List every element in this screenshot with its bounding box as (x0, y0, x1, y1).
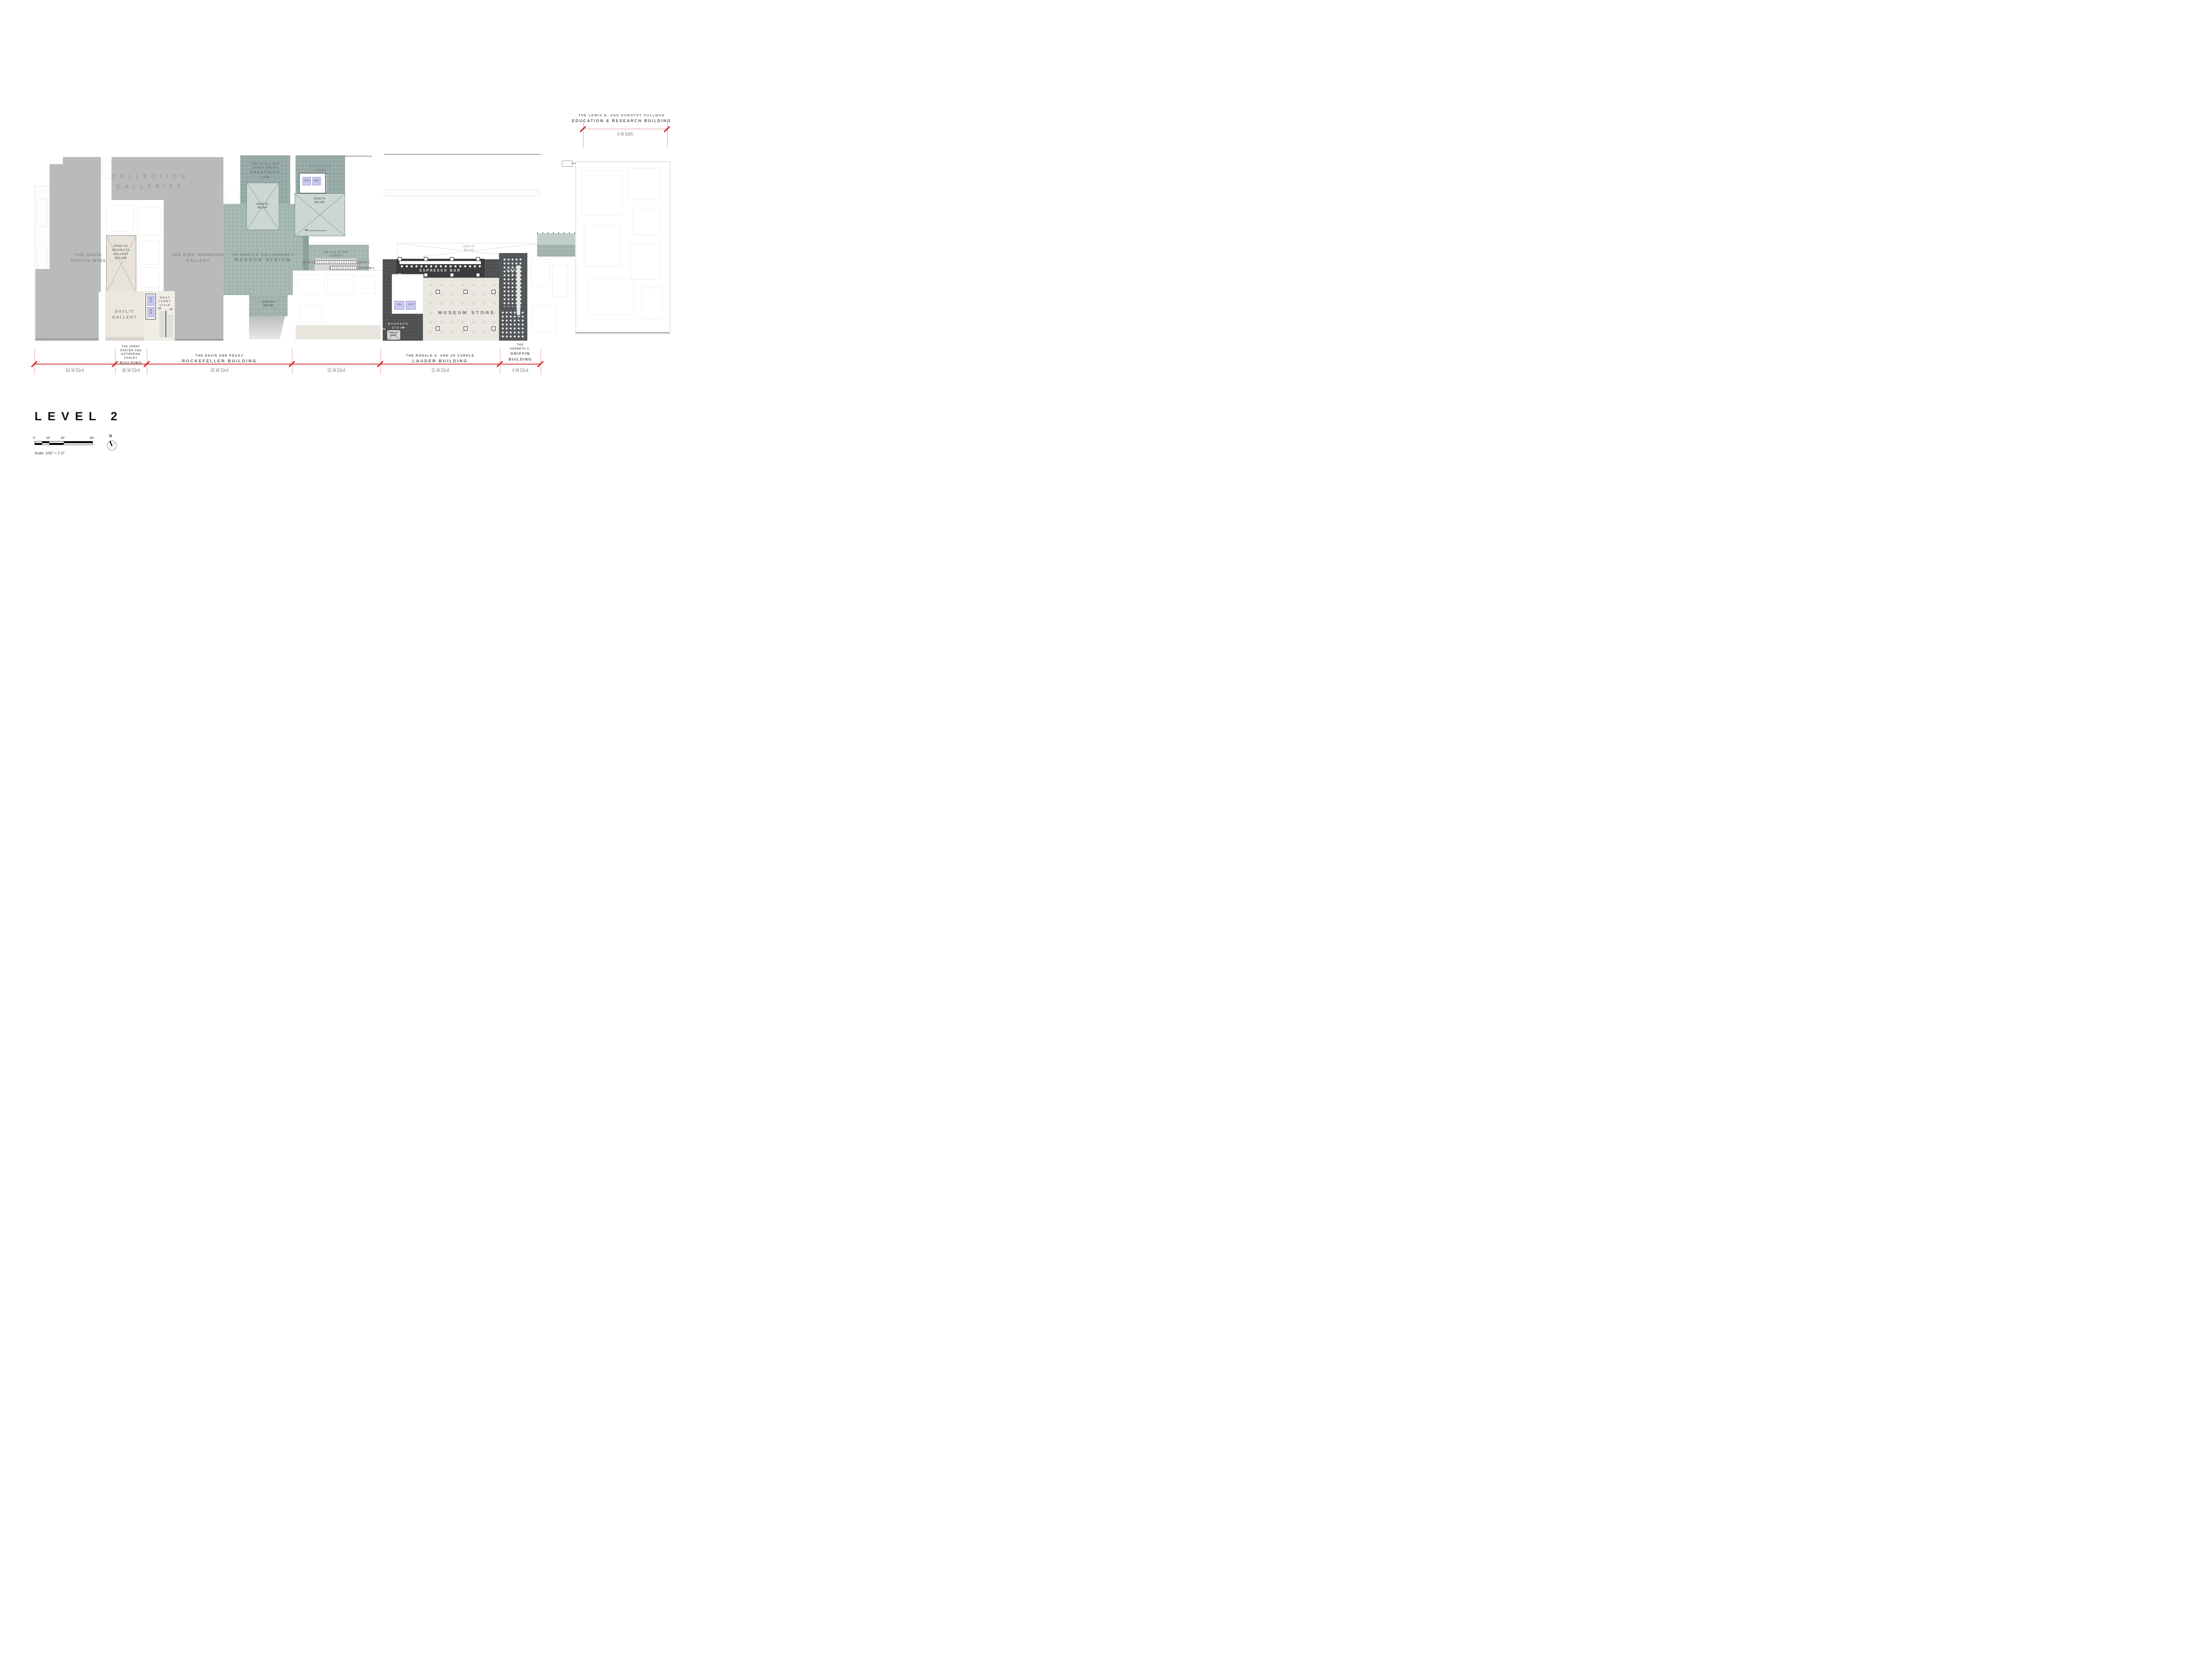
lauder-building-name: THE RONALD S. AND JO CAROLE LAUDER BUILD… (396, 354, 484, 365)
faint-room (633, 208, 660, 235)
espresso-stools (399, 265, 481, 268)
dim-line-54th (583, 129, 667, 129)
faint-room (630, 243, 660, 280)
column-post (476, 273, 480, 277)
elevator-pe5: PE-5 (303, 177, 311, 185)
faint-room (106, 204, 134, 232)
faint-room (141, 267, 159, 288)
faint-room (533, 305, 557, 333)
column-post (424, 273, 428, 277)
faint-bridge (384, 189, 540, 196)
address-25w53: 25 W 53rd (204, 367, 235, 373)
cafe-tables (501, 311, 524, 338)
daylit-gallery-label: DAYLITGALLERY (105, 309, 144, 320)
dn-to-1-label: DN TO 1 (358, 261, 378, 265)
plan-notch (50, 157, 63, 164)
daylit-shadow (105, 337, 144, 341)
escalator-down (330, 266, 357, 270)
cullman-link-line (572, 163, 576, 164)
faint-room (138, 241, 159, 265)
column-post (436, 326, 440, 330)
column-post (476, 257, 480, 261)
column-post (398, 257, 402, 261)
connector-ticks (537, 232, 575, 234)
faint-room (299, 305, 322, 322)
dim-hairline (292, 349, 292, 374)
varnedoe-gallery-label: THE KIRK VARNEDOEGALLERY (167, 252, 229, 263)
elevator-lobby-label: ELEVATORLOBBY (296, 165, 345, 173)
scale-tick-16: 16' (46, 436, 50, 440)
west-lobby-stair-label: WESTLOBBYSTAIR (154, 296, 176, 307)
roof-line (310, 156, 372, 157)
faint-room (327, 274, 353, 295)
scale-tick-64: 64' (90, 436, 94, 440)
column-post (436, 290, 440, 294)
elevator-pe21: PE21 (147, 307, 154, 317)
open-below-label: OPEN TOBELOW (397, 245, 541, 253)
cafe2-label: CAFE2 (499, 268, 527, 277)
elevator-pe6: PE-6 (312, 177, 321, 185)
center-wood-band (296, 325, 380, 339)
faint-room (137, 207, 161, 235)
address-4w54: 4 W 54th (609, 131, 641, 137)
open-below-label: OPEN TOBELOW (249, 300, 288, 308)
faint-room (552, 265, 568, 297)
dim-hairline (541, 349, 541, 374)
dim-hairline (35, 349, 35, 374)
cullman-annex (562, 161, 572, 167)
elevator-pe20: PE20 (147, 296, 154, 306)
faint-room (297, 274, 325, 295)
column-post (464, 326, 468, 330)
address-9w53: 9 W 53rd (504, 367, 536, 373)
entry-canopy (249, 316, 285, 339)
espresso-counter (399, 261, 481, 264)
collection-galleries-label: COLLECTIONGALLERIES (77, 172, 223, 192)
faint-room (531, 259, 549, 286)
dim-hairline (500, 349, 500, 374)
column-post (464, 290, 468, 294)
faint-room (588, 279, 634, 315)
stair-flight-up (167, 315, 173, 337)
dim-hairline (583, 120, 584, 148)
dn-label: DN (381, 328, 387, 330)
faint-room (584, 226, 620, 266)
griffin-building-name: THEKENNETH C. GRIFFIN BUILDING (503, 343, 538, 362)
faint-room (37, 248, 47, 270)
roof-line (384, 154, 541, 155)
espresso-bar-label: ESPRESSO BAR (397, 268, 484, 273)
dn-arrow-line (310, 230, 326, 231)
scale-tick-0: 0 (33, 436, 35, 440)
column-post (492, 326, 495, 330)
open-below-label: OPEN TOBELOW (295, 197, 344, 205)
address-11w53: 11 W 53rd (424, 367, 456, 373)
faint-stair (322, 175, 326, 191)
stair-divider (165, 311, 166, 337)
cullman-connector-lower (537, 245, 575, 257)
escalator-lobby-label: ESCALATORLOBBY (310, 251, 363, 258)
marron-atrium-label: THE DONALD B. AND CATHERINE C. MARRON AT… (223, 253, 303, 263)
faint-room (628, 168, 660, 200)
faint-room (37, 199, 47, 227)
cullman-connector-upper (537, 233, 575, 245)
north-arrow-icon (105, 439, 119, 452)
address-15w53: 15 W 53rd (320, 367, 352, 373)
column-post (450, 273, 454, 277)
column-post (492, 290, 495, 294)
cullman-bottom-edge (576, 332, 669, 333)
open-below-label: OPEN TOBELOW (387, 331, 400, 336)
north-label: N (109, 434, 112, 438)
cullman-title: THE LEWIS B. AND DOROTHY CULLMAN EDUCATI… (555, 114, 684, 124)
up-label: UP (401, 326, 406, 329)
creativity-lab-label: THE PAULA ANDJAMES CROWN CREATIVITY LAB (240, 162, 290, 180)
varnedoe-lower-mass (175, 283, 223, 341)
up-label: UP (168, 308, 174, 311)
open-below-label: OPEN TOBELOW (246, 203, 278, 210)
column-post (450, 257, 454, 261)
scale-tick-32: 32' (61, 436, 65, 440)
dn-label: DN (303, 229, 310, 232)
page-title: LEVEL 2 (35, 410, 123, 423)
elevator-pe9: PE 9 (406, 301, 416, 310)
scale-bar-row2 (35, 443, 93, 445)
museum-store-label: MUSEUM STORE (423, 310, 511, 316)
geffen-wing-label: THE DAVIDGEFFEN WING (62, 252, 115, 263)
address-45w53: 45 W 53rd (115, 367, 147, 373)
faint-room (356, 275, 376, 294)
mass-shadow (175, 339, 223, 341)
geffen-wing-lower-mass (35, 269, 99, 341)
scale-note: Scale: 1/32" = 1'-0" (35, 451, 65, 455)
dim-hairline (380, 349, 381, 374)
stair-flight-down (159, 311, 165, 337)
dim-hairline (667, 120, 668, 148)
farley-building-name: THE JERRYSPEYER AND KATHERINEFARLEY BUIL… (113, 345, 149, 365)
escalator-up (315, 260, 357, 264)
rockefeller-building-name: THE DAVID AND PEGGY ROCKEFELLER BUILDING (175, 354, 264, 365)
mass-shadow (35, 338, 99, 340)
address-53w53: 53 W 53rd (59, 367, 91, 373)
faint-room (225, 186, 240, 204)
column-post (424, 257, 428, 261)
dn-label: DN (157, 307, 163, 311)
faint-room (641, 288, 662, 319)
faint-room (582, 170, 622, 215)
floor-plan-canvas: OPEN TOPROJECTS GALLERYBELOW OPEN TOBELO… (0, 0, 684, 513)
elevator-pe8: PE 8 (394, 301, 404, 310)
dn-from-3-label: DN FROM 3 (358, 266, 381, 270)
